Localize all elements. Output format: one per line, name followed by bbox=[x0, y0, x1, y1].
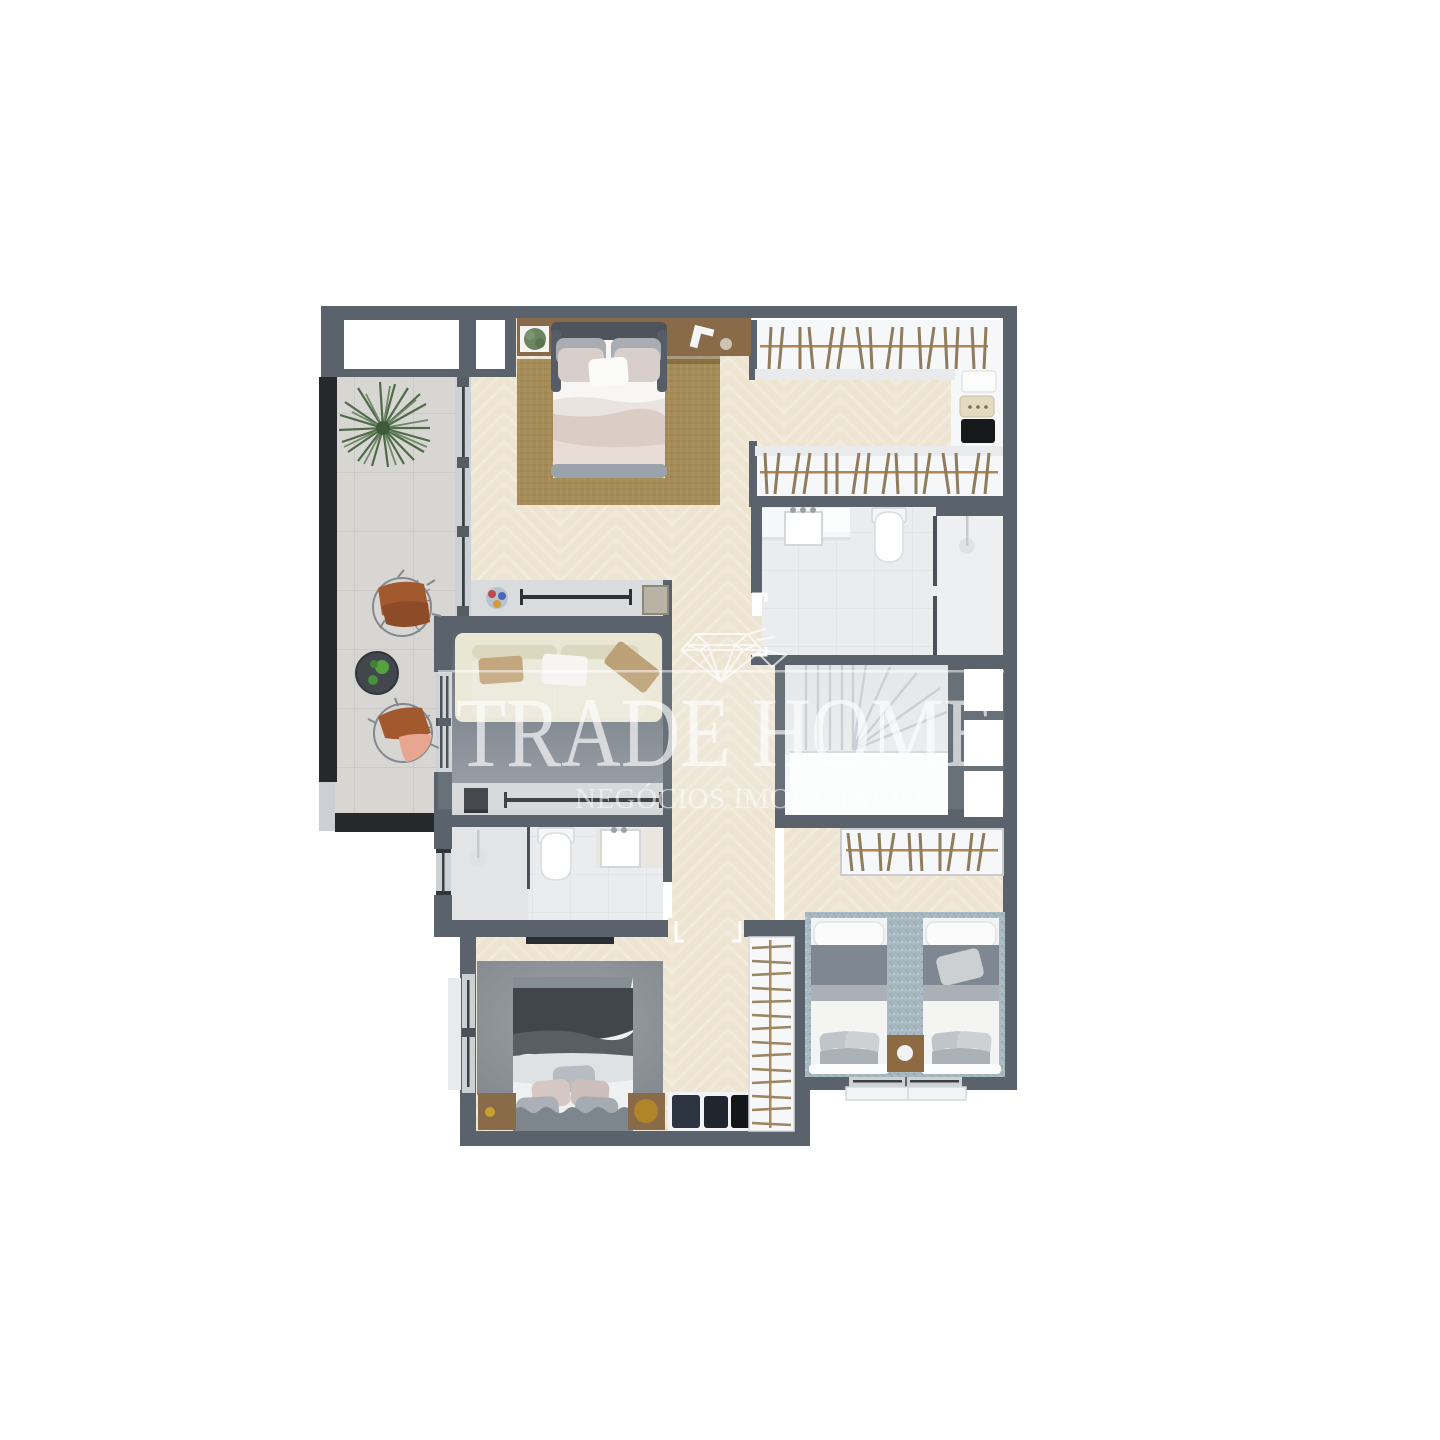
svg-text:TRADE HOME: TRADE HOME bbox=[456, 677, 994, 788]
svg-text:NEGÓCIOS IMOBILIÁRIOS: NEGÓCIOS IMOBILIÁRIOS bbox=[575, 782, 939, 815]
